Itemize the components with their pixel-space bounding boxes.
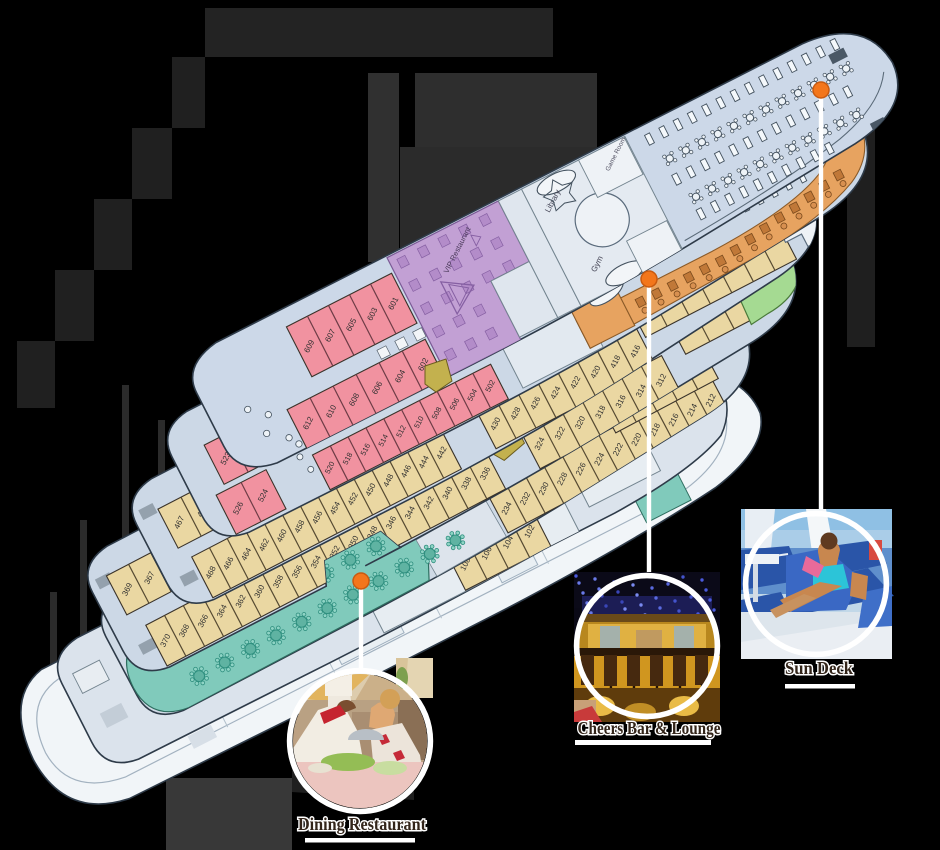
svg-text:Cheers Bar & Lounge: Cheers Bar & Lounge: [578, 718, 721, 738]
svg-text:Sun Deck: Sun Deck: [785, 658, 853, 678]
svg-text:Dining Restaurant: Dining Restaurant: [298, 814, 426, 834]
